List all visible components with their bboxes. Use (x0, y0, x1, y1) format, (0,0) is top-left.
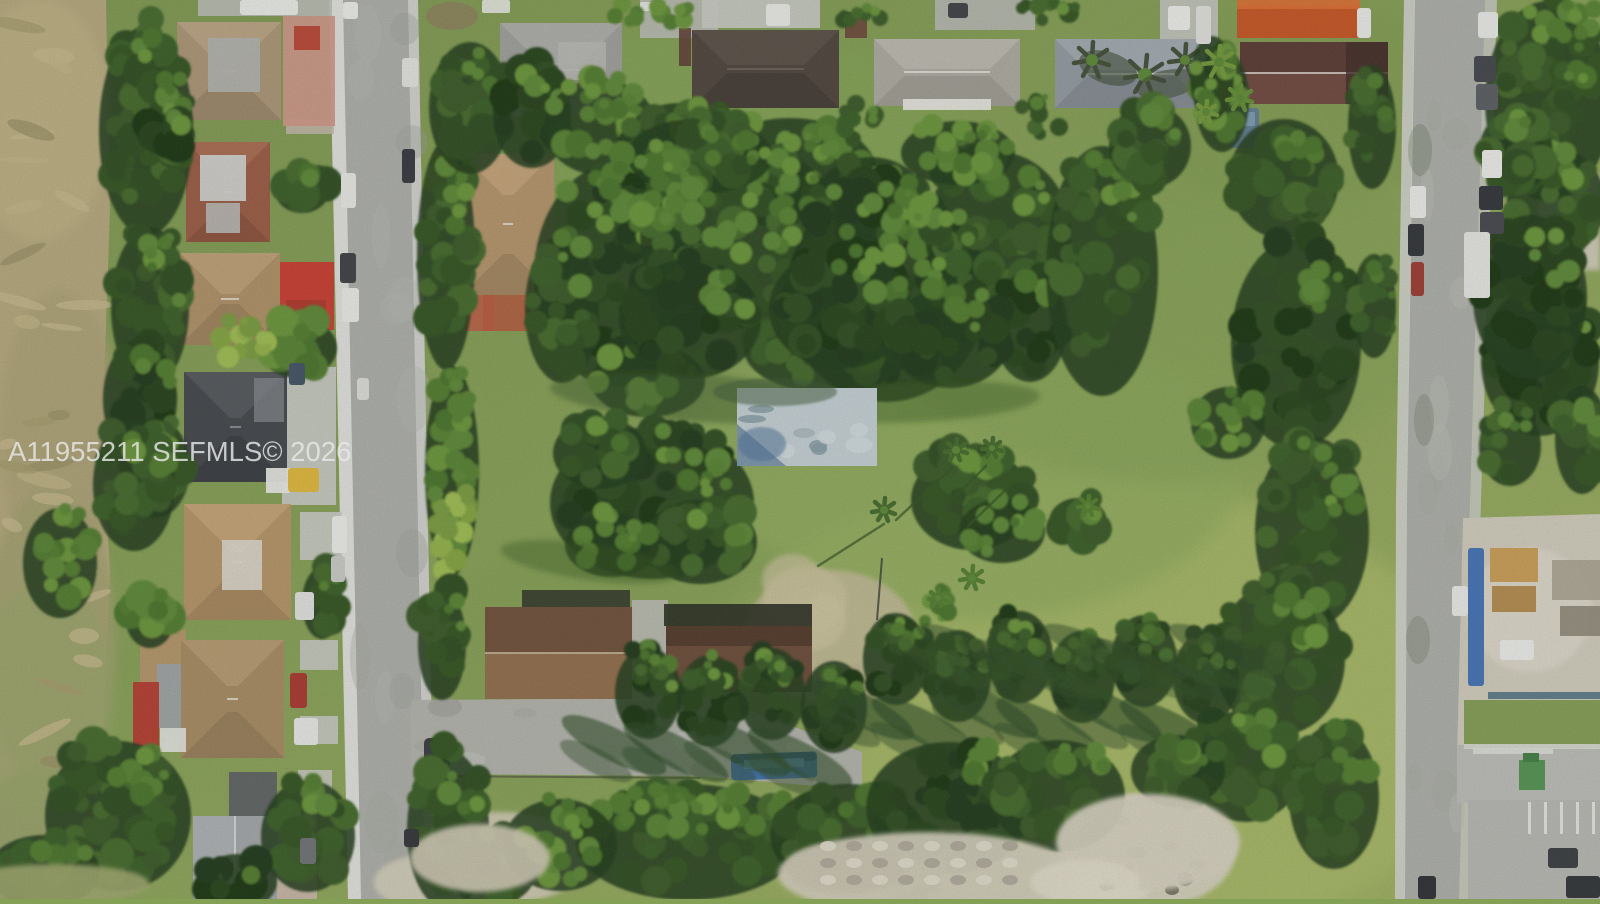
svg-text:A11955211 SEFMLS© 2026: A11955211 SEFMLS© 2026 (8, 436, 351, 467)
